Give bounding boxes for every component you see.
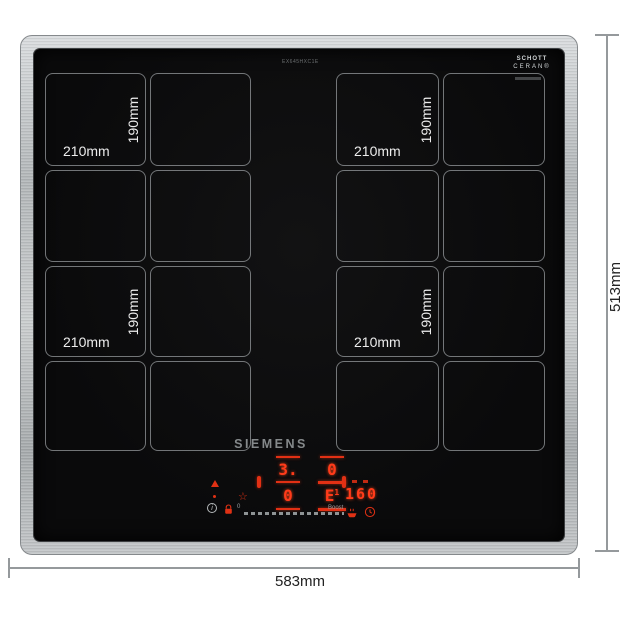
signal-arrow-icon <box>211 480 219 487</box>
zone-width-label: 210mm <box>63 143 110 159</box>
slider-max-label: Boost <box>328 505 343 511</box>
power-slider-track <box>244 512 344 515</box>
width-dimension-endcap-right <box>578 558 580 578</box>
favorite-star-icon: ☆ <box>238 492 248 503</box>
zone-segment <box>443 73 546 166</box>
zone-width-label: 210mm <box>354 334 401 350</box>
zone-height-label: 190mm <box>125 97 141 144</box>
zone-segment <box>150 73 251 166</box>
height-dimension-endcap-bottom <box>595 550 619 552</box>
hob-stainless-frame: EX645HXC1E SCHOTT CERAN® 210mm 190mm <box>20 35 578 555</box>
width-dimension-endcap-left <box>8 558 10 578</box>
zone-height-label: 190mm <box>418 97 434 144</box>
hob-glass-surface: EX645HXC1E SCHOTT CERAN® 210mm 190mm <box>34 49 564 541</box>
slider-min-label: 0 <box>237 504 240 510</box>
zone-width-label: 210mm <box>63 334 110 350</box>
cooking-zone-front-right: 210mm 190mm <box>336 266 545 451</box>
schott-ceran-logo-line2: CERAN® <box>511 64 553 72</box>
zone-segment <box>443 266 546 357</box>
info-icon: i <box>207 503 217 513</box>
schott-ceran-logo-line1: SCHOTT <box>511 56 553 64</box>
cooking-zone-front-left: 210mm 190mm <box>45 266 251 451</box>
display-front-right-sup: 1 <box>334 488 339 497</box>
cooking-zone-rear-left: 210mm 190mm <box>45 73 251 262</box>
cooking-zone-rear-right: 210mm 190mm <box>336 73 545 262</box>
zone-indicator-bar <box>276 508 300 510</box>
width-dimension-label: 583mm <box>240 573 360 590</box>
touch-control-panel: SIEMENS 3. 0 0 E1 160 <box>195 435 420 530</box>
temperature-unit-mark <box>363 480 368 483</box>
zone-segment <box>150 170 251 263</box>
zone-segment <box>45 361 146 452</box>
keep-warm-icon <box>346 507 358 519</box>
zone-indicator-bar <box>276 481 300 483</box>
zone-height-label: 190mm <box>125 289 141 336</box>
display-rear-left: 3. <box>273 460 303 479</box>
zone-segment <box>336 170 439 263</box>
zone-segment <box>150 266 251 357</box>
temperature-unit-mark <box>352 480 357 483</box>
zone-segment <box>443 361 546 452</box>
brand-logo: SIEMENS <box>228 437 314 451</box>
model-number-print: EX645HXC1E <box>282 59 319 65</box>
product-diagram: EX645HXC1E SCHOTT CERAN® 210mm 190mm <box>0 0 625 625</box>
timer-clock-icon <box>364 506 376 518</box>
zone-segment <box>45 170 146 263</box>
width-dimension-line <box>8 567 580 569</box>
display-front-right: E1 <box>317 486 347 505</box>
zone-height-label: 190mm <box>418 289 434 336</box>
height-dimension-label: 513mm <box>607 262 624 312</box>
zone-select-pill-left <box>257 476 261 488</box>
zone-width-label: 210mm <box>354 143 401 159</box>
status-dot-icon <box>213 495 216 498</box>
zone-indicator-bar <box>276 456 300 458</box>
height-dimension-endcap-top <box>595 34 619 36</box>
display-front-left: 0 <box>273 486 303 505</box>
childlock-icon <box>223 504 234 515</box>
zone-segment <box>443 170 546 263</box>
schott-ceran-logo: SCHOTT CERAN® <box>511 56 553 71</box>
zone-indicator-bar <box>320 456 344 458</box>
frying-sensor-temperature-display: 160 <box>345 485 385 503</box>
